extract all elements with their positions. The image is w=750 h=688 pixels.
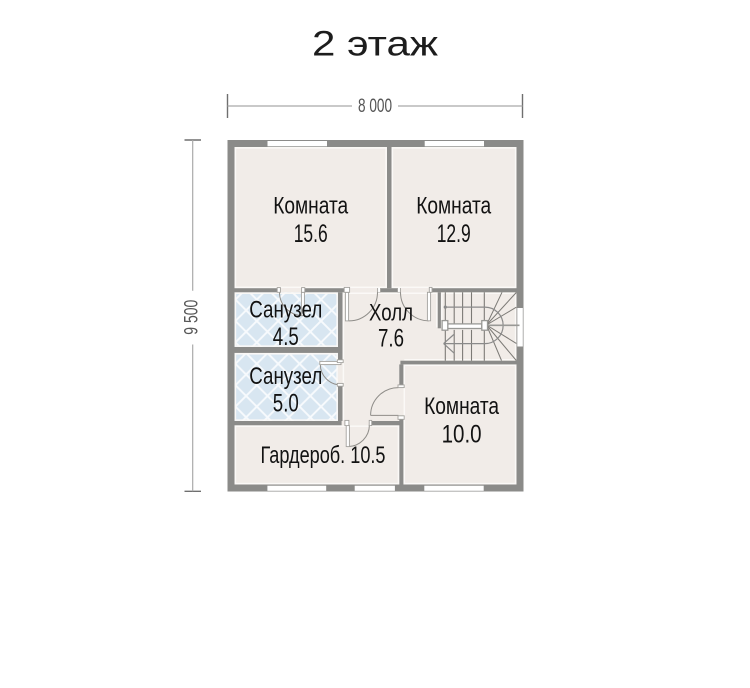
svg-text:Гардероб. 10.5: Гардероб. 10.5 bbox=[261, 442, 386, 469]
svg-text:Комната: Комната bbox=[424, 393, 500, 420]
svg-text:7.6: 7.6 bbox=[378, 325, 404, 353]
svg-text:Холл: Холл bbox=[369, 300, 413, 327]
svg-text:Комната: Комната bbox=[273, 193, 349, 220]
svg-text:15.6: 15.6 bbox=[294, 220, 328, 248]
svg-text:Комната: Комната bbox=[416, 193, 492, 220]
svg-text:9 500: 9 500 bbox=[182, 300, 203, 335]
svg-text:5.0: 5.0 bbox=[273, 390, 299, 418]
svg-text:8 000: 8 000 bbox=[358, 96, 392, 117]
svg-text:Санузел: Санузел bbox=[249, 297, 322, 324]
svg-text:Санузел: Санузел bbox=[249, 363, 322, 390]
svg-text:4.5: 4.5 bbox=[273, 323, 299, 351]
svg-text:10.0: 10.0 bbox=[442, 421, 482, 449]
svg-text:2 этаж: 2 этаж bbox=[312, 25, 439, 64]
svg-text:12.9: 12.9 bbox=[437, 220, 471, 248]
